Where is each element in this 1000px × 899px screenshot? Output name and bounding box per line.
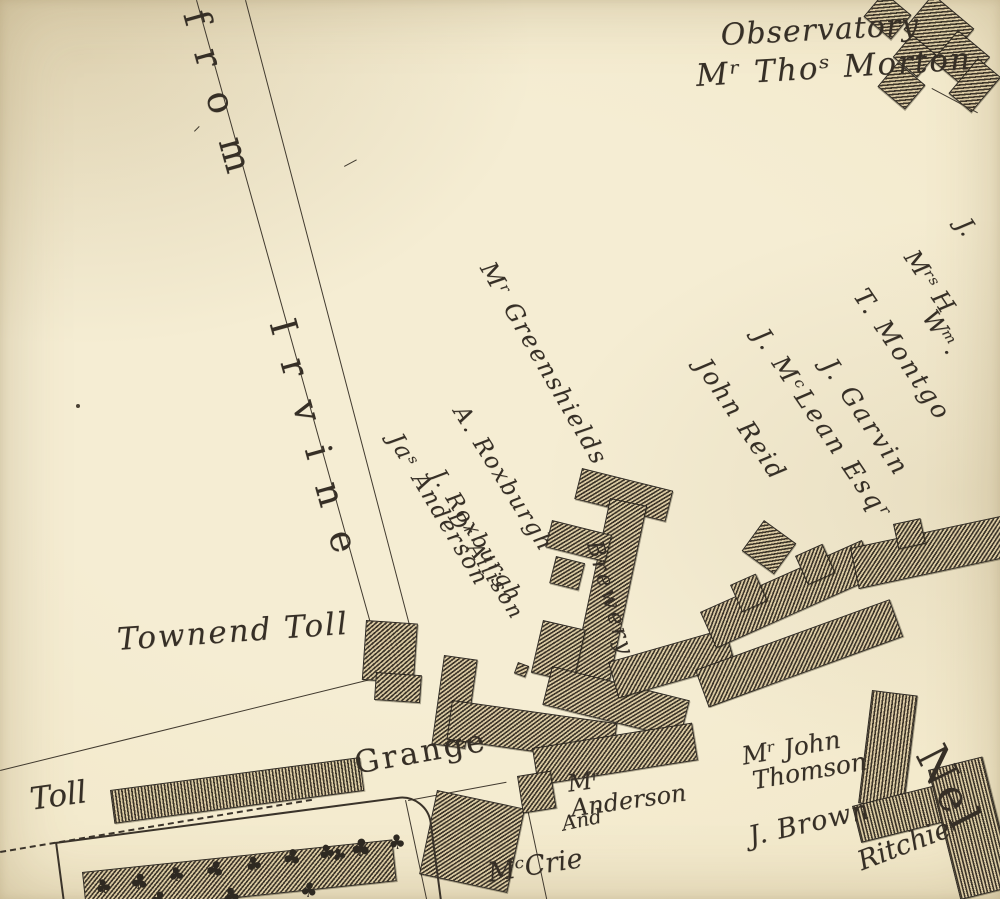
tree-icon: ♣ xyxy=(387,829,407,855)
place-label-observatory: Observatory xyxy=(720,10,920,52)
tree-icon: ♣ xyxy=(298,877,319,899)
resident-label-mrs-h-fragment: Mʳˢ H xyxy=(899,246,959,318)
resident-label-john-thomson: Mʳ John Thomson xyxy=(740,723,869,795)
street-row-building xyxy=(517,771,557,814)
toll-house-building xyxy=(374,672,422,703)
historical-town-map: ♣ ♣ ♣ ♣ ♣ ♣ ♣ ♣ ♣ ♣ ♣ ♣ ♣ from Irvine Ob… xyxy=(0,0,1000,899)
resident-label-and-fragment: And xyxy=(560,806,604,835)
street-label-from-irvine: from Irvine xyxy=(176,6,371,582)
street-row-building xyxy=(850,516,1000,589)
resident-label-j-fragment: J. xyxy=(951,214,980,241)
tree-icon: ♣ xyxy=(349,833,373,863)
street-edge-line-west xyxy=(0,679,371,771)
resident-label-j-brown: J. Brown xyxy=(746,796,873,851)
place-label-townend-toll: Townend Toll xyxy=(116,608,350,656)
engraving-mark xyxy=(194,126,200,132)
small-outbuilding xyxy=(514,662,529,677)
engraving-mark xyxy=(344,159,357,166)
street-label-grange: Grange xyxy=(352,725,490,780)
brewery-building xyxy=(549,556,585,590)
engraving-mark xyxy=(76,404,80,408)
tree-icon: ♣ xyxy=(167,863,187,887)
tree-icon: ♣ xyxy=(280,845,303,873)
place-label-toll: Toll xyxy=(28,776,89,816)
resident-label-greenshields: Mʳ Greenshields xyxy=(475,258,612,470)
reid-house-building xyxy=(742,520,797,574)
